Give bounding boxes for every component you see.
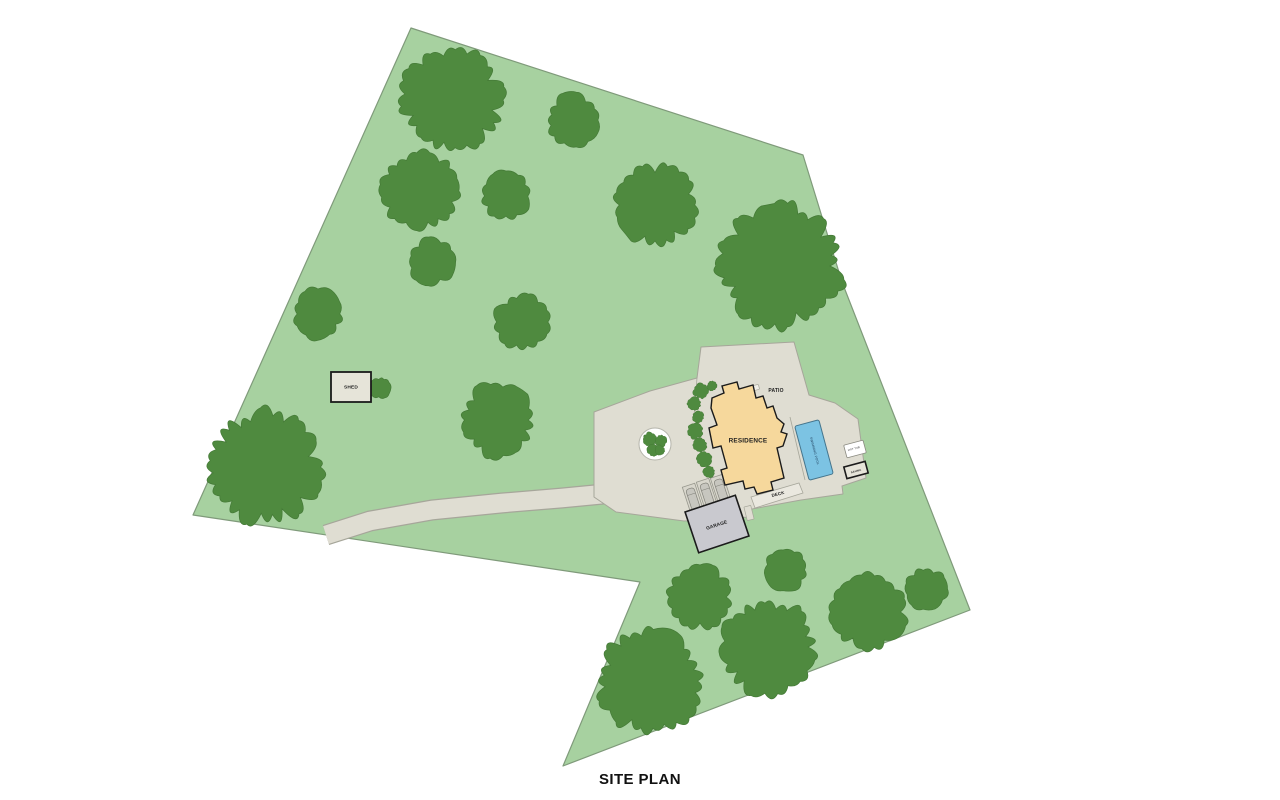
- patio-label: PATIO: [768, 388, 783, 394]
- residence-label: RESIDENCE: [729, 438, 768, 445]
- shed-label: SHED: [344, 385, 358, 391]
- plan-title: SITE PLAN: [0, 771, 1280, 788]
- tree: [764, 549, 806, 591]
- site-plan-page: SHEDPATIORESIDENCEDECKGARAGESWIMMING POO…: [0, 0, 1280, 800]
- tree: [482, 170, 530, 219]
- tree: [369, 378, 391, 399]
- site-plan-drawing: SHEDPATIORESIDENCEDECKGARAGESWIMMING POO…: [0, 0, 1280, 800]
